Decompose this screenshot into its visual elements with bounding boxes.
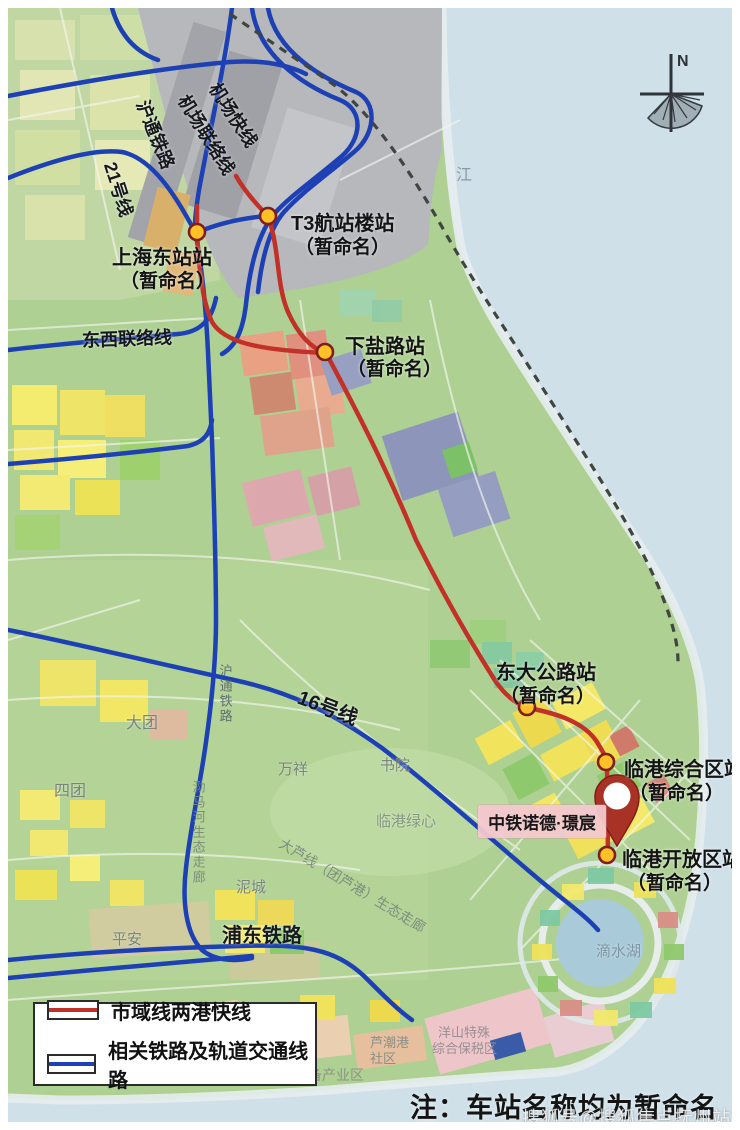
map-screenshot: 上海东站站 （暂命名） T3航站楼站 （暂命名） 下盐路站 （暂命名） 东大公路…	[0, 0, 740, 1130]
compass-rose: N	[630, 42, 720, 147]
station-label-lingang-open-zone: 临港开放区站	[622, 850, 734, 871]
station-sublabel-xiayan-road: （暂命名）	[347, 360, 442, 380]
station-sublabel-lingang-comprehensive: （暂命名）	[629, 784, 724, 804]
label-nicheng: 泥城	[236, 880, 266, 896]
poi-label-zhongtie-nuode: 中铁诺德·璟宸	[478, 805, 606, 838]
label-hutong-railway-south: 沪通铁路	[218, 664, 232, 724]
station-dot-lingang-open-zone	[599, 847, 615, 863]
label-yangshan-1: 洋山特殊	[438, 1026, 490, 1040]
station-dot-t3-terminal	[260, 208, 276, 224]
label-situan: 四团	[54, 784, 86, 801]
legend: 市域线两港快线 相关铁路及轨道交通线路	[33, 1002, 317, 1086]
legend-row-rail: 相关铁路及轨道交通线路	[47, 1035, 315, 1093]
label-luchaogang-2: 社区	[370, 1052, 396, 1066]
label-pudong-railway: 浦东铁路	[222, 926, 302, 947]
label-river: 江	[456, 168, 473, 185]
station-label-t3-terminal: T3航站楼站	[291, 214, 394, 235]
compass-fan	[648, 94, 702, 128]
watermark: 搜狐号@搜狐焦点抚州站	[522, 1104, 731, 1122]
label-datuan: 大团	[126, 716, 158, 733]
label-east-west-link: 东西联络线	[82, 328, 173, 350]
label-wanxiang: 万祥	[278, 762, 308, 778]
label-pingan: 平安	[112, 932, 142, 948]
station-sublabel-t3-terminal: （暂命名）	[295, 238, 390, 258]
compass-north-label: N	[677, 53, 689, 70]
station-label-dongda-highway: 东大公路站	[496, 663, 596, 684]
legend-row-regional: 市域线两港快线	[47, 996, 315, 1025]
label-luchaogang-1: 芦潮港	[370, 1036, 409, 1050]
legend-swatch-rail-line	[47, 1054, 96, 1074]
legend-label-rail-line: 相关铁路及轨道交通线路	[108, 1035, 315, 1093]
station-sublabel-lingang-open-zone: （暂命名）	[627, 874, 722, 894]
station-dot-shanghai-east	[189, 224, 205, 240]
station-label-shanghai-east: 上海东站站	[112, 248, 212, 269]
station-dot-lingang-comprehensive	[598, 754, 614, 770]
station-dot-xiayan-road	[317, 344, 333, 360]
station-label-xiayan-road: 下盐路站	[345, 337, 425, 358]
station-label-lingang-comprehensive: 临港综合区站	[624, 760, 734, 781]
map-canvas: 上海东站站 （暂命名） T3航站楼站 （暂命名） 下盐路站 （暂命名） 东大公路…	[8, 8, 734, 1122]
label-shuyuan: 书院	[380, 758, 410, 774]
legend-swatch-regional-line	[47, 1000, 99, 1020]
label-yangshan-2: 综合保税区	[432, 1042, 497, 1056]
legend-label-regional-line: 市域线两港快线	[111, 996, 251, 1025]
label-dishui-lake: 滴水湖	[596, 944, 641, 960]
station-sublabel-dongda-highway: （暂命名）	[500, 687, 595, 707]
label-lingang-green-heart: 临港绿心	[376, 814, 436, 830]
station-sublabel-shanghai-east: （暂命名）	[120, 272, 215, 292]
label-lema-river-corridor: 泐马河生态走廊	[191, 780, 205, 885]
